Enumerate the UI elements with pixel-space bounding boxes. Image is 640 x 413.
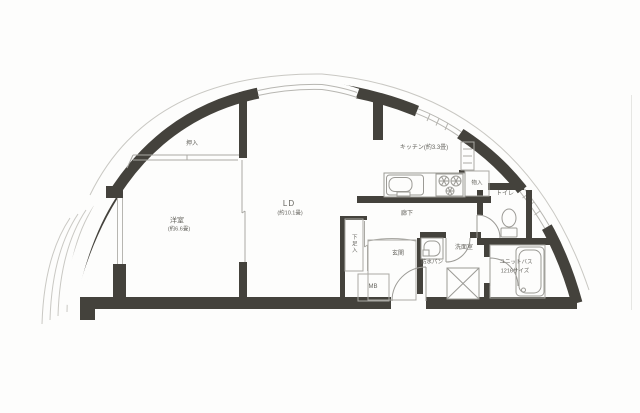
label-shoe-closet: 下足入: [350, 234, 356, 254]
label-living-size: (約10.1畳): [277, 211, 302, 217]
sink-handle: [397, 192, 410, 196]
label-bedroom: 洋室: [170, 218, 184, 225]
bathtub-faucet: [522, 288, 526, 292]
wall: [373, 96, 383, 140]
label-kitchen: キッチン(約3.3畳): [400, 145, 448, 151]
shoe-closet-doors: [365, 221, 368, 271]
railing-arc: [42, 218, 70, 324]
label-closet-oshiire: 押入: [186, 141, 198, 147]
scan-edge-line: [631, 95, 632, 310]
label-entrance: 玄関: [392, 251, 404, 257]
wall: [488, 183, 524, 190]
label-hallway: 廊下: [401, 211, 413, 217]
room-outlines: [127, 142, 545, 301]
interior-walls: [80, 92, 577, 320]
label-washroom: 洗面室: [455, 245, 473, 251]
toilet-bowl: [502, 209, 516, 227]
label-living: LD: [283, 200, 295, 208]
wall-bottom: [80, 297, 577, 309]
label-closet-monoire: 物入: [471, 181, 482, 187]
wall: [470, 232, 481, 238]
wall: [239, 262, 247, 301]
wall-step: [80, 309, 95, 320]
label-bedroom-size: (約6.6畳): [168, 227, 190, 233]
door-gap: [238, 158, 248, 262]
label-laundry-pan: 防水パン: [421, 260, 443, 266]
window-kitchen: [417, 111, 460, 134]
toilet-fixture: [501, 209, 517, 237]
wall: [526, 190, 532, 240]
floorplan: 押入 洋室 (約6.6畳) LD (約10.1畳) キッチン(約3.3畳) 物入…: [0, 0, 640, 413]
washbasin-faucet: [423, 250, 429, 256]
wall: [484, 245, 490, 257]
duct-strip-ticks: [463, 149, 472, 163]
kitchen-fixtures: [384, 173, 465, 197]
wall: [477, 238, 551, 245]
label-toilet: トイレ: [496, 191, 514, 197]
label-meter-box: MB: [369, 284, 378, 290]
floorplan-drawing: [0, 0, 640, 413]
wall: [239, 92, 247, 158]
label-bath: ユニットバス: [499, 260, 532, 266]
entrance-opening: [391, 294, 426, 310]
sink-bowl: [389, 178, 412, 192]
wall: [420, 232, 446, 238]
bedroom-sliding-door: [238, 158, 248, 262]
toilet-tank: [501, 228, 517, 237]
opening-lower-left: [68, 193, 110, 305]
wall: [477, 190, 483, 215]
label-bath-size: 1216サイズ: [501, 269, 530, 275]
wall: [340, 216, 345, 301]
wall: [106, 186, 123, 198]
genkan-tile: [368, 240, 416, 300]
